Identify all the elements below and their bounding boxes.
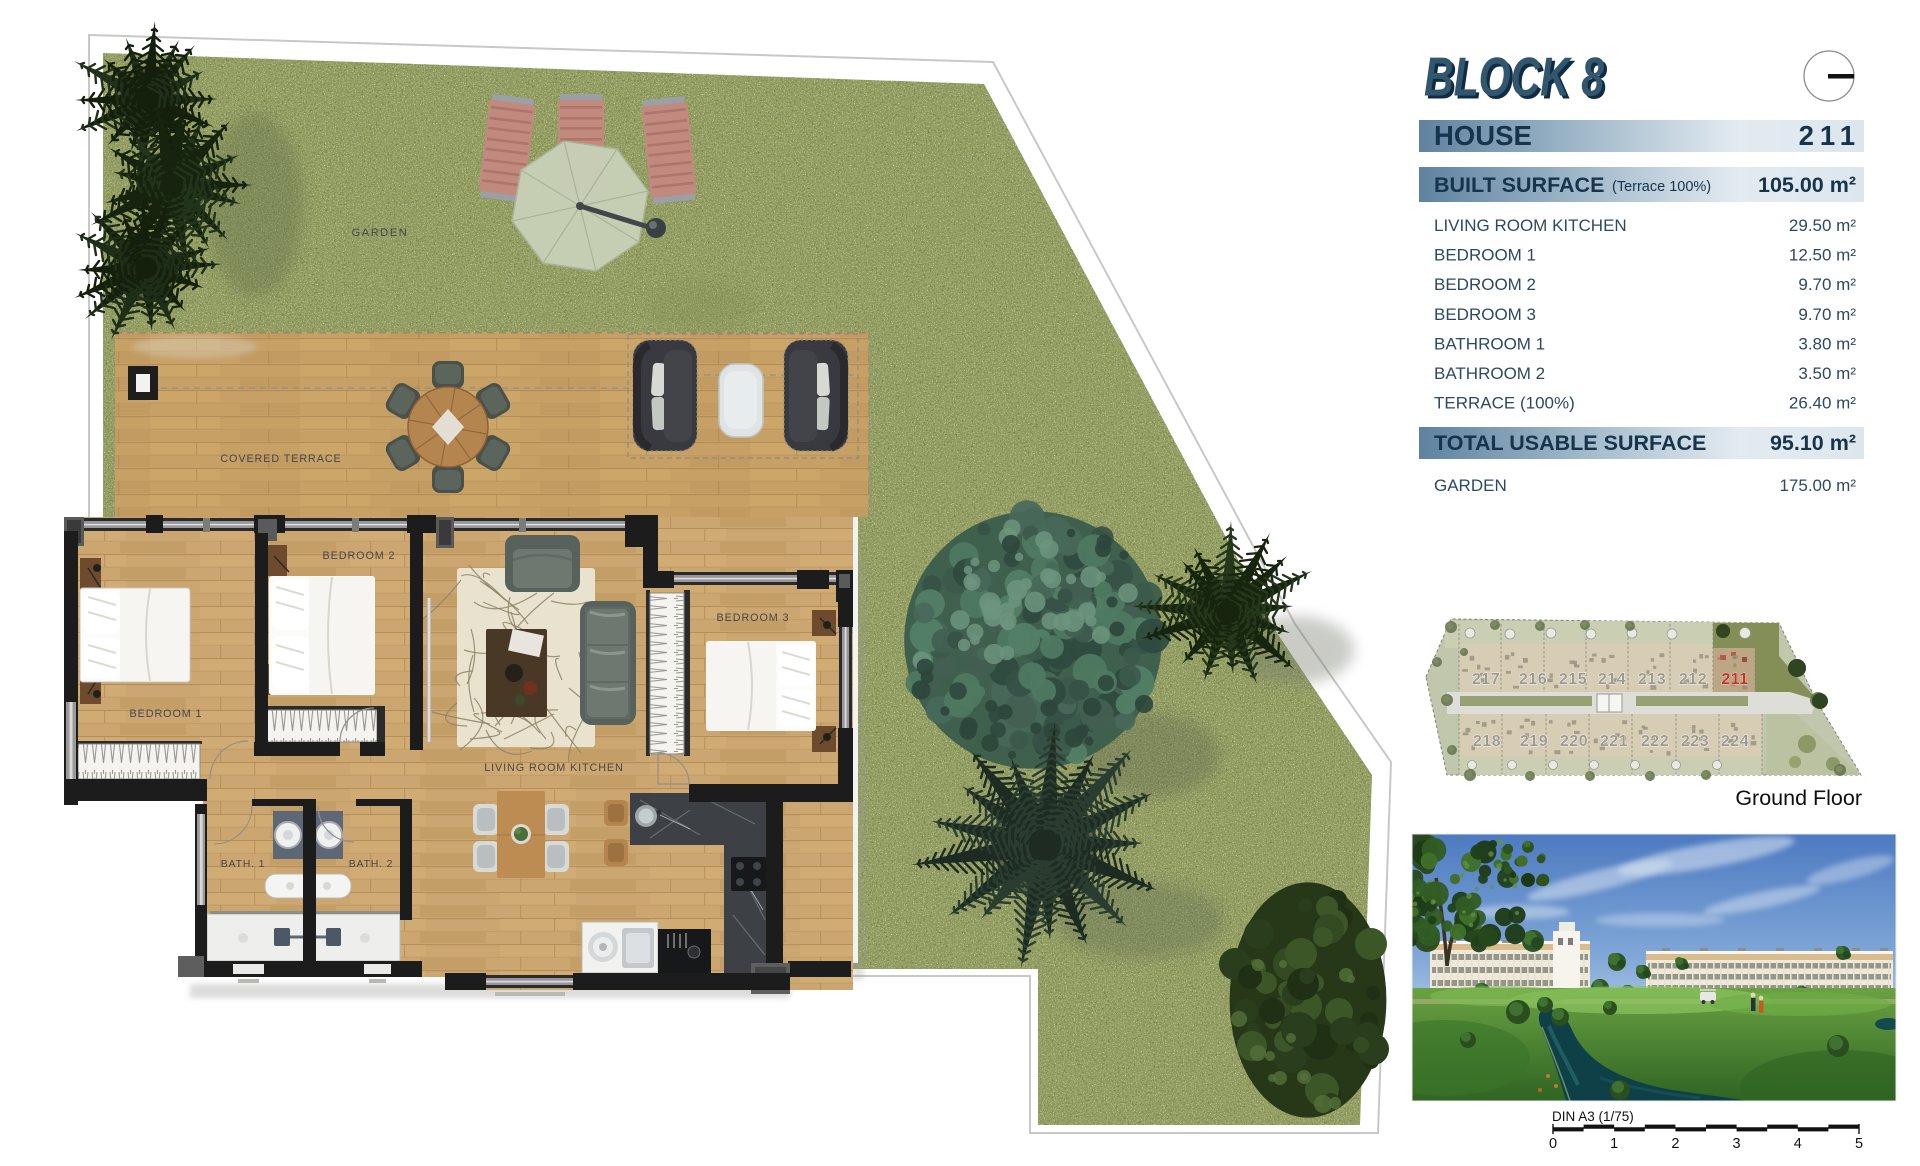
svg-text:BEDROOM 2: BEDROOM 2 — [1434, 275, 1536, 294]
svg-text:GARDEN: GARDEN — [1434, 476, 1507, 495]
svg-text:220: 220 — [1560, 733, 1588, 750]
svg-text:BEDROOM 2: BEDROOM 2 — [323, 550, 396, 562]
svg-text:BATHROOM 1: BATHROOM 1 — [1434, 334, 1545, 353]
svg-text:212: 212 — [1679, 671, 1707, 688]
svg-text:LIVING ROOM KITCHEN: LIVING ROOM KITCHEN — [1434, 216, 1627, 235]
svg-text:213: 213 — [1638, 671, 1666, 688]
svg-text:BATH. 1: BATH. 1 — [221, 858, 266, 870]
svg-text:4: 4 — [1794, 1136, 1802, 1152]
svg-text:TOTAL USABLE SURFACE: TOTAL USABLE SURFACE — [1434, 431, 1706, 455]
svg-text:211: 211 — [1799, 120, 1861, 151]
svg-text:217: 217 — [1472, 671, 1500, 688]
svg-text:214: 214 — [1598, 671, 1626, 688]
svg-text:TERRACE (100%): TERRACE (100%) — [1434, 394, 1575, 413]
svg-text:BLOCK 8: BLOCK 8 — [1424, 46, 1604, 108]
svg-text:BEDROOM 1: BEDROOM 1 — [1434, 246, 1536, 265]
svg-text:COVERED TERRACE: COVERED TERRACE — [220, 453, 341, 465]
svg-text:95.10 m²: 95.10 m² — [1770, 431, 1856, 455]
svg-text:GARDEN: GARDEN — [352, 227, 409, 239]
svg-text:223: 223 — [1681, 733, 1709, 750]
svg-text:BEDROOM 3: BEDROOM 3 — [1434, 305, 1536, 324]
svg-text:3.80 m²: 3.80 m² — [1798, 334, 1856, 353]
svg-text:12.50 m²: 12.50 m² — [1789, 246, 1856, 265]
svg-text:224: 224 — [1721, 733, 1749, 750]
svg-text:221: 221 — [1600, 733, 1628, 750]
svg-text:BEDROOM 3: BEDROOM 3 — [717, 612, 790, 624]
svg-text:105.00 m²: 105.00 m² — [1758, 173, 1856, 197]
svg-text:9.70 m²: 9.70 m² — [1798, 275, 1856, 294]
svg-text:9.70 m²: 9.70 m² — [1798, 305, 1856, 324]
svg-text:2: 2 — [1671, 1136, 1679, 1152]
svg-text:LIVING ROOM KITCHEN: LIVING ROOM KITCHEN — [484, 762, 623, 774]
svg-text:219: 219 — [1520, 733, 1548, 750]
svg-text:BUILT SURFACE: BUILT SURFACE — [1434, 173, 1604, 197]
svg-text:218: 218 — [1473, 733, 1501, 750]
svg-text:BATHROOM 2: BATHROOM 2 — [1434, 364, 1545, 383]
svg-text:HOUSE: HOUSE — [1434, 120, 1532, 151]
svg-text:3.50 m²: 3.50 m² — [1798, 364, 1856, 383]
svg-text:5: 5 — [1855, 1136, 1863, 1152]
svg-text:29.50 m²: 29.50 m² — [1789, 216, 1856, 235]
svg-text:(Terrace 100%): (Terrace 100%) — [1612, 179, 1711, 195]
svg-text:BATH. 2: BATH. 2 — [349, 858, 394, 870]
svg-text:DIN A3 (1/75): DIN A3 (1/75) — [1552, 1109, 1634, 1124]
svg-text:26.40 m²: 26.40 m² — [1789, 394, 1856, 413]
svg-text:175.00 m²: 175.00 m² — [1779, 476, 1856, 495]
svg-text:0: 0 — [1549, 1136, 1557, 1152]
svg-text:211: 211 — [1721, 671, 1748, 688]
svg-text:1: 1 — [1610, 1136, 1618, 1152]
svg-text:222: 222 — [1641, 733, 1669, 750]
svg-text:BEDROOM 1: BEDROOM 1 — [130, 708, 203, 720]
svg-text:3: 3 — [1733, 1136, 1741, 1152]
svg-text:Ground Floor: Ground Floor — [1735, 786, 1862, 810]
svg-text:215: 215 — [1559, 671, 1587, 688]
svg-text:216: 216 — [1519, 671, 1547, 688]
